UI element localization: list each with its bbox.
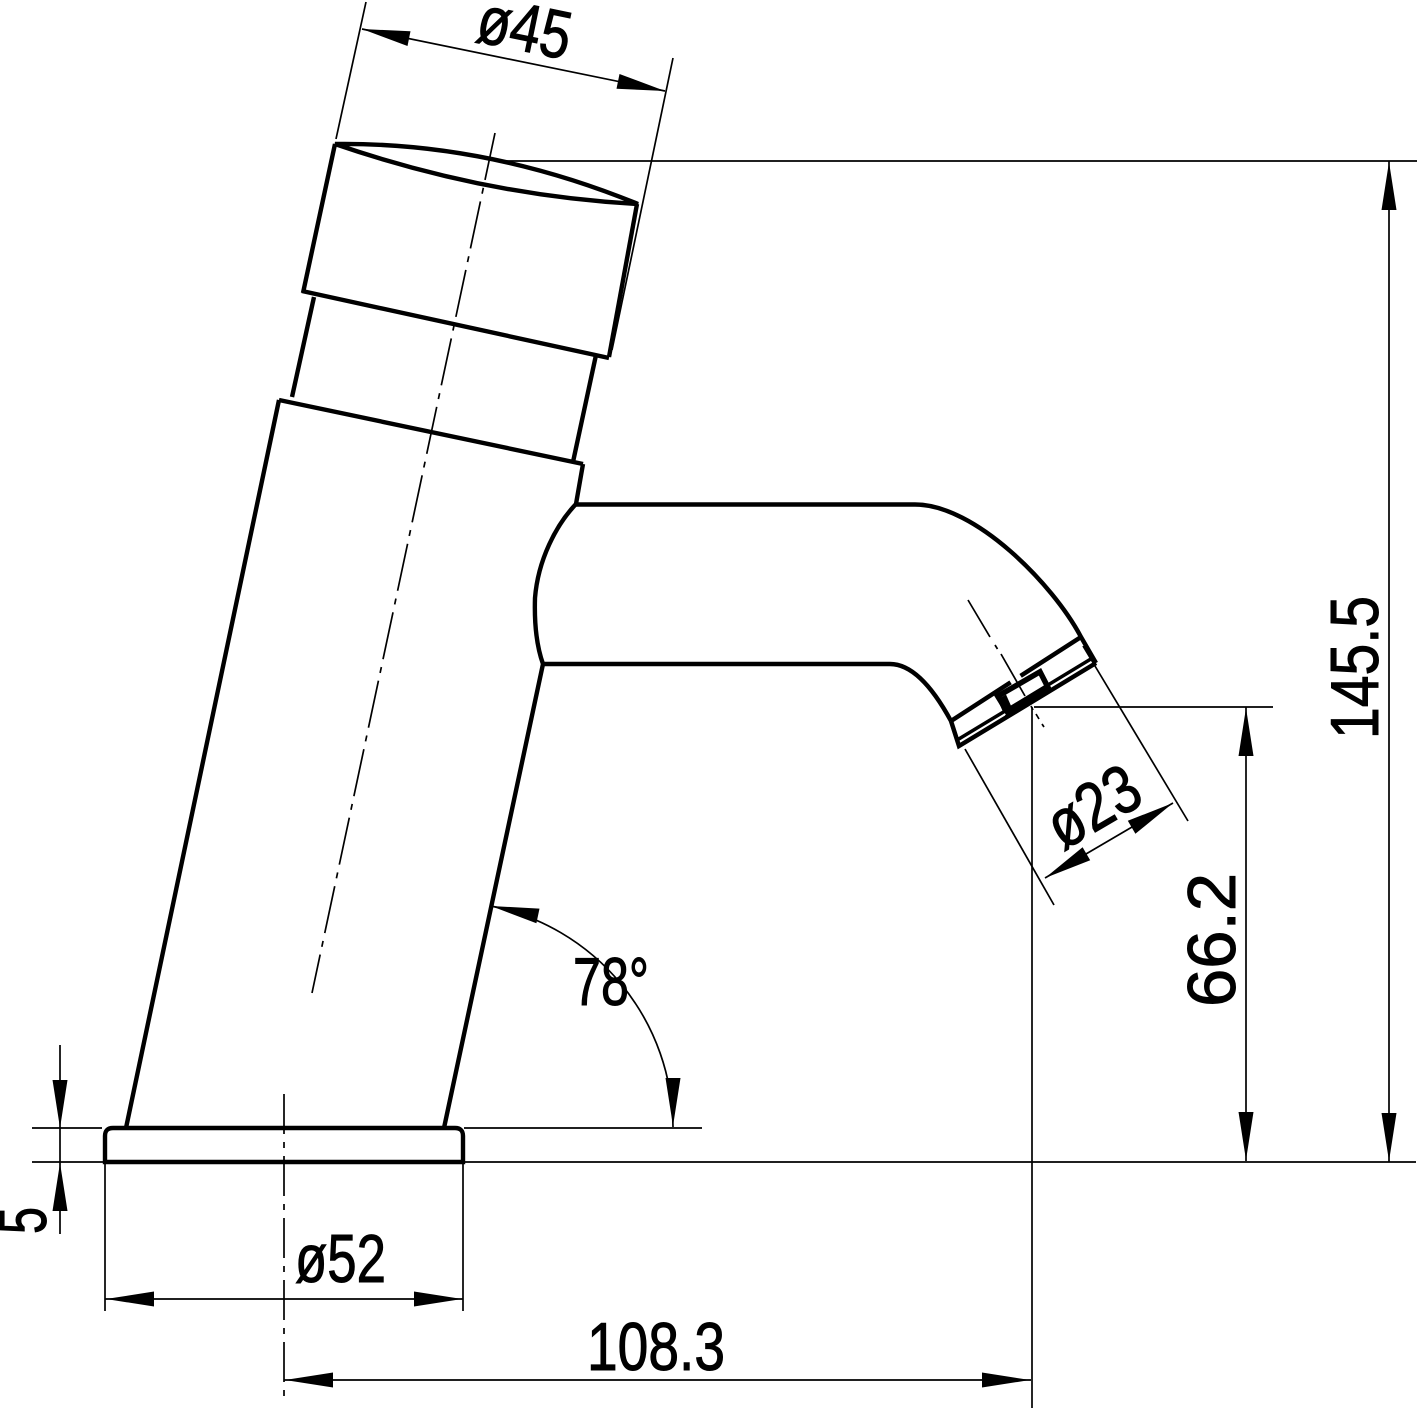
svg-text:ø23: ø23	[1032, 749, 1154, 864]
svg-text:108.3: 108.3	[587, 1309, 725, 1385]
svg-text:145.5: 145.5	[1317, 596, 1393, 739]
svg-text:ø45: ø45	[471, 0, 578, 75]
svg-text:ø52: ø52	[295, 1221, 386, 1297]
svg-text:78°: 78°	[573, 944, 649, 1020]
svg-text:66.2: 66.2	[1174, 873, 1250, 1007]
svg-text:5: 5	[0, 1207, 61, 1234]
